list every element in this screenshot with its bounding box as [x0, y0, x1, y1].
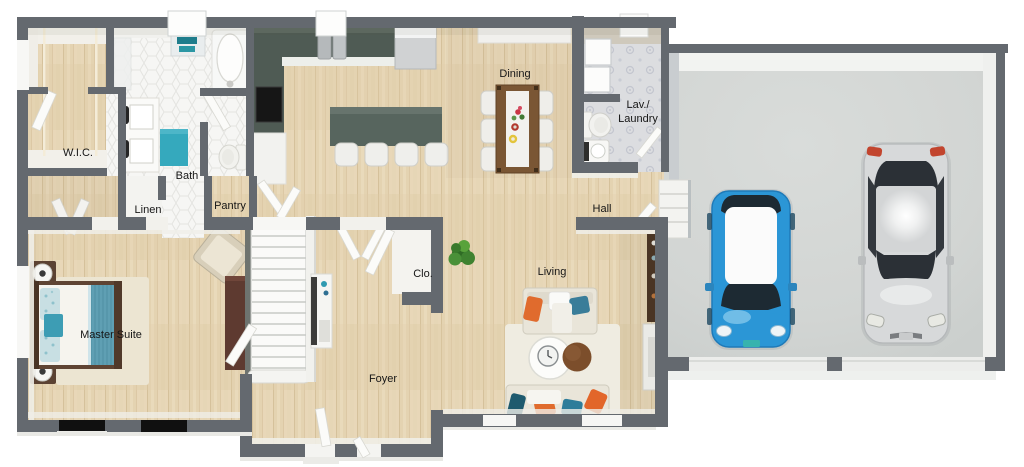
svg-text:Living: Living: [538, 266, 567, 278]
svg-text:Master Suite: Master Suite: [80, 329, 142, 341]
svg-text:Foyer: Foyer: [369, 373, 397, 385]
svg-text:W.I.C.: W.I.C.: [63, 147, 93, 159]
svg-text:Dining: Dining: [499, 68, 530, 80]
svg-text:Pantry: Pantry: [214, 200, 246, 212]
svg-text:Lav./: Lav./: [626, 99, 650, 111]
svg-text:Laundry: Laundry: [618, 113, 658, 125]
svg-text:Bath: Bath: [176, 170, 199, 182]
svg-text:Hall: Hall: [593, 203, 612, 215]
svg-text:Clo.: Clo.: [413, 268, 433, 280]
svg-text:Linen: Linen: [135, 204, 162, 216]
